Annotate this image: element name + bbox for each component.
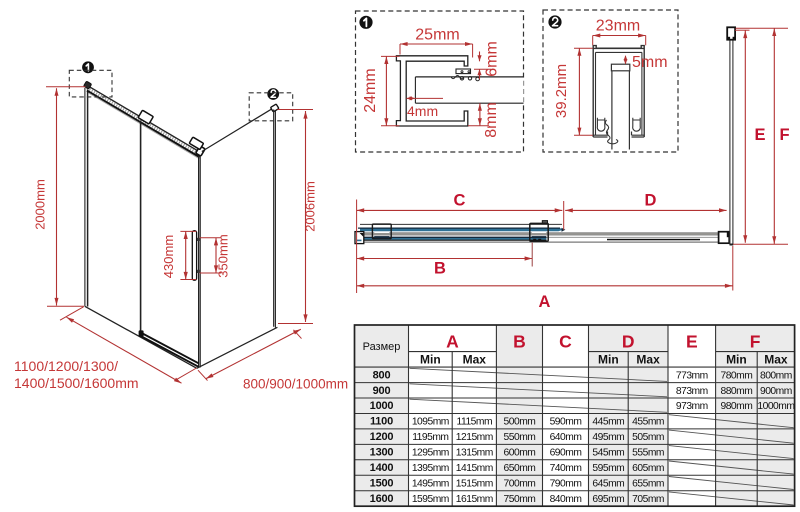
- svg-text:445mm: 445mm: [592, 417, 624, 428]
- svg-text:D: D: [645, 191, 657, 209]
- svg-text:645mm: 645mm: [592, 479, 624, 490]
- svg-text:1295mm: 1295mm: [412, 448, 449, 459]
- svg-text:C: C: [454, 191, 466, 209]
- svg-text:1615mm: 1615mm: [456, 494, 493, 505]
- svg-text:655mm: 655mm: [632, 479, 664, 490]
- svg-text:700mm: 700mm: [504, 479, 536, 490]
- svg-text:600mm: 600mm: [504, 448, 536, 459]
- svg-text:1215mm: 1215mm: [456, 432, 493, 443]
- svg-text:D: D: [622, 331, 635, 351]
- svg-text:350mm: 350mm: [216, 234, 231, 277]
- svg-text:595mm: 595mm: [592, 463, 624, 474]
- svg-text:780mm: 780mm: [720, 370, 752, 381]
- svg-text:1400: 1400: [370, 462, 394, 474]
- svg-text:25mm: 25mm: [415, 27, 459, 44]
- svg-text:545mm: 545mm: [592, 448, 624, 459]
- svg-text:E: E: [686, 331, 698, 351]
- svg-text:430mm: 430mm: [161, 235, 176, 278]
- svg-text:B: B: [434, 260, 446, 278]
- svg-text:495mm: 495mm: [592, 432, 624, 443]
- svg-text:695mm: 695mm: [592, 494, 624, 505]
- svg-text:Min: Min: [726, 353, 747, 367]
- svg-text:550mm: 550mm: [504, 432, 536, 443]
- svg-text:650mm: 650mm: [504, 463, 536, 474]
- svg-text:705mm: 705mm: [632, 494, 664, 505]
- svg-text:E: E: [755, 126, 766, 144]
- svg-text:640mm: 640mm: [550, 432, 582, 443]
- svg-text:1300: 1300: [370, 447, 394, 459]
- svg-text:1315mm: 1315mm: [456, 448, 493, 459]
- svg-text:840mm: 840mm: [550, 494, 582, 505]
- svg-text:1000: 1000: [370, 400, 394, 412]
- svg-text:1515mm: 1515mm: [456, 479, 493, 490]
- svg-text:4mm: 4mm: [407, 103, 438, 119]
- svg-text:5mm: 5mm: [632, 54, 668, 71]
- svg-text:800/900/1000mm: 800/900/1000mm: [243, 377, 348, 392]
- svg-text:1395mm: 1395mm: [412, 463, 449, 474]
- svg-text:500mm: 500mm: [504, 417, 536, 428]
- svg-text:873mm: 873mm: [676, 386, 708, 397]
- svg-text:2000mm: 2000mm: [33, 179, 48, 230]
- svg-text:1095mm: 1095mm: [412, 417, 449, 428]
- svg-text:1195mm: 1195mm: [412, 432, 448, 443]
- svg-text:C: C: [559, 331, 572, 351]
- svg-text:23mm: 23mm: [596, 18, 640, 35]
- svg-text:555mm: 555mm: [632, 448, 664, 459]
- svg-text:973mm: 973mm: [676, 401, 708, 412]
- svg-text:Max: Max: [636, 353, 660, 367]
- svg-text:605mm: 605mm: [632, 463, 664, 474]
- svg-text:790mm: 790mm: [550, 479, 582, 490]
- svg-text:1000mm: 1000mm: [757, 401, 794, 412]
- svg-text:900mm: 900mm: [760, 386, 792, 397]
- svg-text:6mm: 6mm: [484, 41, 501, 77]
- svg-text:590mm: 590mm: [550, 417, 582, 428]
- svg-text:24mm: 24mm: [362, 68, 379, 112]
- svg-text:F: F: [750, 331, 761, 351]
- svg-text:880mm: 880mm: [720, 386, 752, 397]
- svg-text:8mm: 8mm: [483, 102, 500, 138]
- svg-text:455mm: 455mm: [632, 417, 664, 428]
- svg-text:2006mm: 2006mm: [303, 181, 318, 232]
- svg-text:39.2mm: 39.2mm: [553, 64, 570, 118]
- svg-text:Max: Max: [764, 353, 788, 367]
- svg-text:F: F: [780, 126, 790, 144]
- svg-text:1200: 1200: [370, 431, 394, 443]
- svg-text:1595mm: 1595mm: [412, 494, 449, 505]
- svg-text:1415mm: 1415mm: [456, 463, 493, 474]
- svg-text:B: B: [513, 331, 526, 351]
- svg-text:1100: 1100: [370, 416, 393, 428]
- svg-text:505mm: 505mm: [632, 432, 664, 443]
- svg-text:Max: Max: [463, 353, 487, 367]
- svg-text:Min: Min: [598, 353, 619, 367]
- svg-text:690mm: 690mm: [550, 448, 582, 459]
- svg-text:1600: 1600: [370, 493, 394, 505]
- svg-text:800mm: 800mm: [760, 370, 792, 381]
- svg-text:773mm: 773mm: [676, 370, 708, 381]
- svg-text:1400/1500/1600mm: 1400/1500/1600mm: [14, 375, 139, 391]
- svg-text:A: A: [446, 331, 459, 351]
- svg-text:1100/1200/1300/: 1100/1200/1300/: [14, 358, 118, 374]
- svg-text:750mm: 750mm: [504, 494, 536, 505]
- svg-text:Min: Min: [420, 353, 441, 367]
- svg-text:900: 900: [373, 385, 391, 397]
- svg-text:Размер: Размер: [363, 341, 401, 353]
- svg-text:980mm: 980mm: [720, 401, 752, 412]
- svg-text:740mm: 740mm: [550, 463, 582, 474]
- svg-text:1495mm: 1495mm: [412, 479, 449, 490]
- svg-text:1115mm: 1115mm: [457, 417, 493, 428]
- svg-text:1500: 1500: [370, 478, 394, 490]
- svg-text:800: 800: [373, 369, 391, 381]
- svg-text:A: A: [539, 293, 551, 311]
